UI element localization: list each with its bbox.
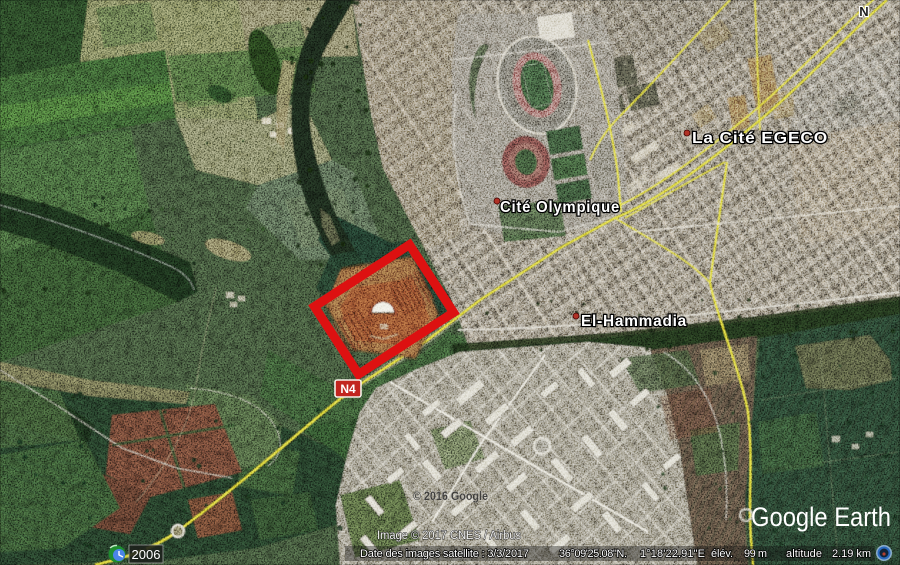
svg-text:N4: N4 (340, 382, 356, 396)
svg-text:1°18'22.91"E: 1°18'22.91"E (640, 548, 705, 560)
svg-text:N: N (859, 4, 868, 19)
svg-text:Google Earth: Google Earth (751, 502, 891, 532)
svg-text:altitude: altitude (786, 548, 822, 560)
svg-text:Date des images satellite : 3/: Date des images satellite : 3/3/2017 (360, 548, 529, 560)
svg-text:La Cité EGECO: La Cité EGECO (692, 130, 828, 147)
svg-text:36°09'25.08"N.: 36°09'25.08"N. (559, 548, 627, 560)
svg-text:El-Hammadia: El-Hammadia (581, 313, 687, 330)
svg-text:© 2016 Google: © 2016 Google (413, 491, 488, 503)
svg-text:Image © 2017 CNES / Airbus: Image © 2017 CNES / Airbus (377, 530, 521, 542)
svg-text:élév.: élév. (711, 548, 733, 560)
svg-text:99 m: 99 m (744, 548, 767, 560)
svg-text:2006: 2006 (132, 547, 161, 562)
svg-text:2.19 km: 2.19 km (832, 548, 871, 560)
svg-text:Cité Olympique: Cité Olympique (500, 199, 620, 216)
